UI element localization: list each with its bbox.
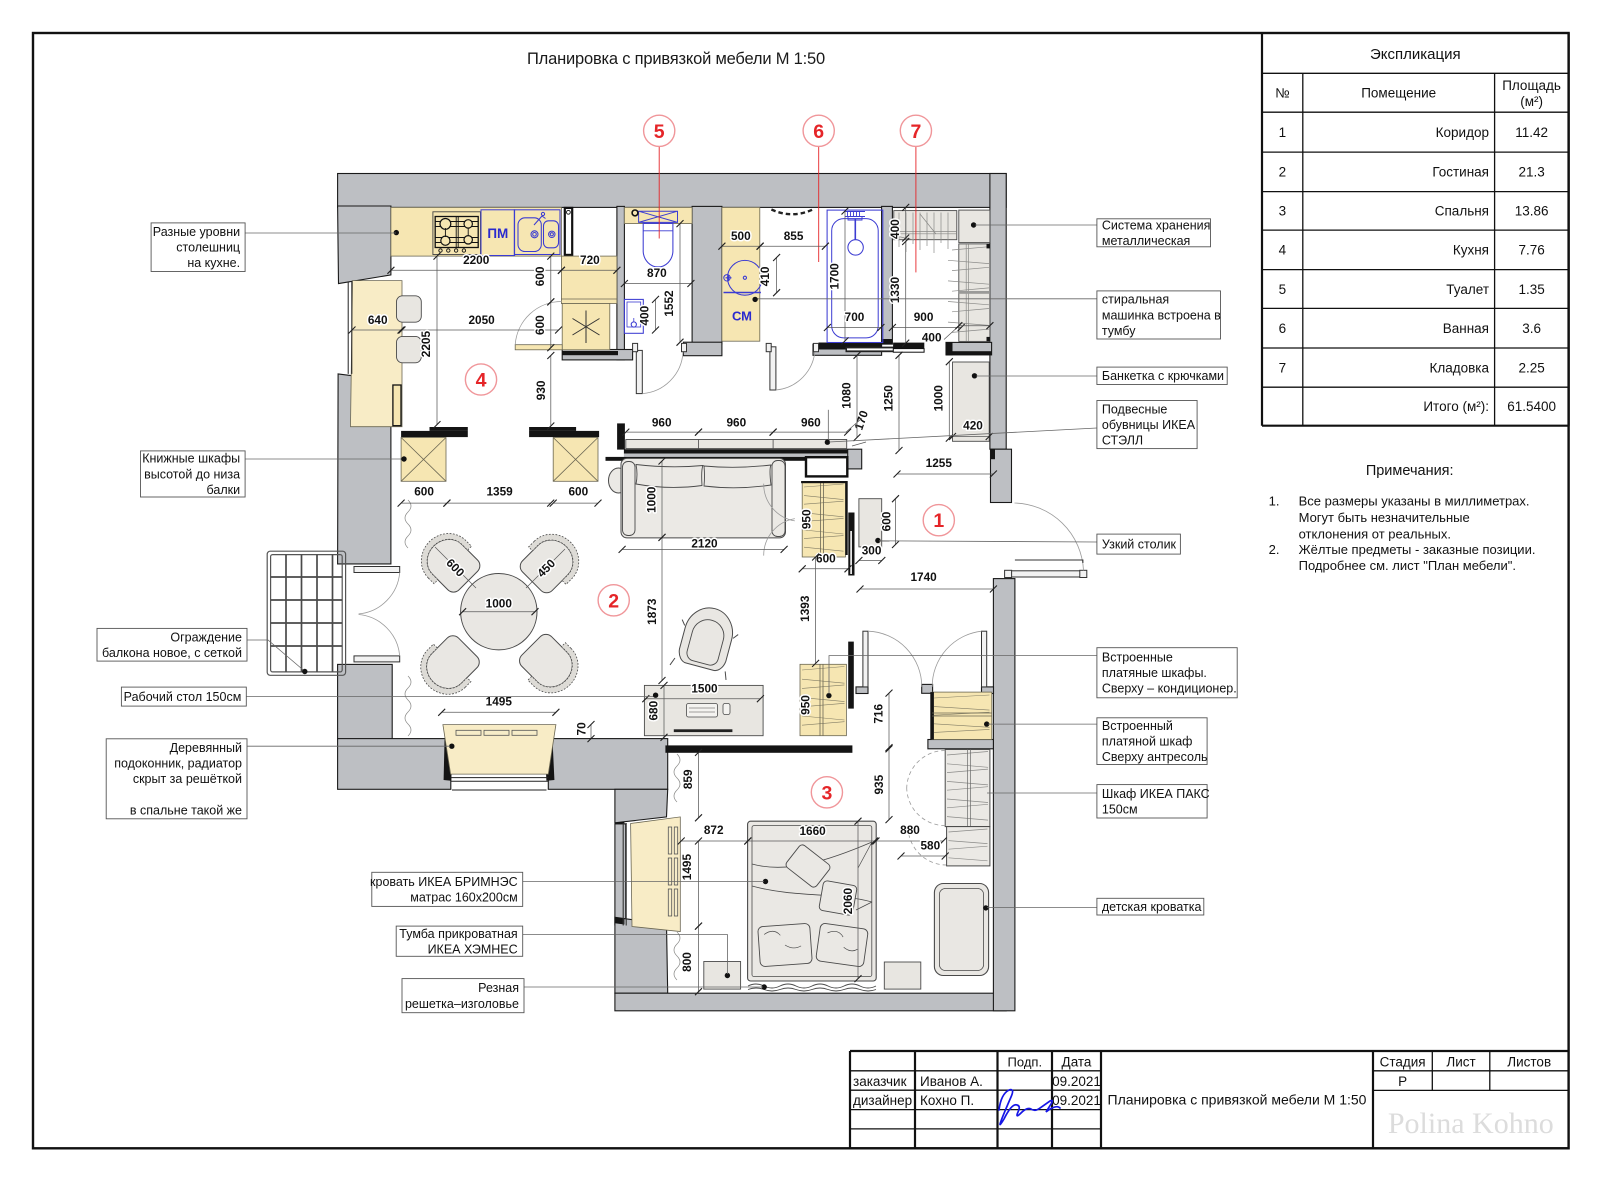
svg-text:870: 870 bbox=[647, 266, 667, 280]
svg-text:1: 1 bbox=[933, 510, 944, 532]
svg-text:Разные уровни: Разные уровни bbox=[153, 225, 240, 239]
svg-text:950: 950 bbox=[798, 695, 812, 715]
svg-text:1660: 1660 bbox=[799, 824, 826, 838]
svg-text:640: 640 bbox=[368, 313, 388, 327]
svg-text:2.25: 2.25 bbox=[1518, 360, 1544, 375]
svg-text:платяной шкаф: платяной шкаф bbox=[1102, 735, 1193, 749]
svg-text:70: 70 bbox=[574, 722, 588, 736]
svg-text:(м²): (м²) bbox=[1520, 94, 1543, 109]
svg-text:2: 2 bbox=[608, 590, 619, 612]
svg-text:стиральная: стиральная bbox=[1102, 293, 1169, 307]
svg-text:400: 400 bbox=[888, 219, 902, 239]
svg-text:балкона новое, с сеткой: балкона новое, с сеткой bbox=[102, 646, 242, 660]
svg-text:Встроенные: Встроенные bbox=[1102, 651, 1173, 665]
svg-text:4: 4 bbox=[1279, 243, 1287, 258]
svg-text:960: 960 bbox=[801, 415, 821, 429]
svg-text:Коридор: Коридор bbox=[1436, 125, 1489, 140]
svg-text:Итого (м²):: Итого (м²): bbox=[1423, 399, 1489, 414]
svg-text:880: 880 bbox=[900, 823, 920, 837]
svg-text:7.76: 7.76 bbox=[1518, 243, 1544, 258]
svg-text:09.2021: 09.2021 bbox=[1052, 1074, 1101, 1089]
svg-text:3.6: 3.6 bbox=[1522, 321, 1541, 336]
svg-text:Кухня: Кухня bbox=[1453, 243, 1489, 258]
svg-text:1700: 1700 bbox=[827, 263, 841, 290]
svg-text:800: 800 bbox=[680, 952, 694, 972]
svg-text:1255: 1255 bbox=[926, 456, 953, 470]
svg-text:Банкетка с крючками: Банкетка с крючками bbox=[1102, 369, 1224, 383]
svg-text:балки: балки bbox=[207, 483, 241, 497]
svg-text:400: 400 bbox=[638, 305, 652, 325]
svg-text:СТЭЛЛ: СТЭЛЛ bbox=[1102, 434, 1143, 448]
svg-text:3: 3 bbox=[1279, 204, 1287, 219]
svg-text:150см: 150см bbox=[1102, 803, 1138, 817]
svg-text:935: 935 bbox=[872, 774, 886, 794]
svg-text:на кухне.: на кухне. bbox=[187, 256, 240, 270]
svg-text:Площадь: Площадь bbox=[1502, 78, 1561, 93]
svg-text:металлическая: металлическая bbox=[1102, 234, 1190, 248]
svg-text:700: 700 bbox=[845, 310, 865, 324]
svg-text:855: 855 bbox=[784, 229, 804, 243]
svg-text:Тумба прикроватная: Тумба прикроватная bbox=[399, 927, 517, 941]
svg-text:Помещение: Помещение bbox=[1361, 86, 1436, 101]
svg-text:950: 950 bbox=[800, 509, 814, 529]
svg-text:Подп.: Подп. bbox=[1008, 1054, 1043, 1069]
svg-text:Лист: Лист bbox=[1446, 1054, 1475, 1069]
svg-text:500: 500 bbox=[731, 229, 751, 243]
svg-text:09.2021: 09.2021 bbox=[1052, 1093, 1101, 1108]
svg-text:СМ: СМ bbox=[732, 309, 752, 324]
svg-text:2120: 2120 bbox=[691, 536, 718, 550]
svg-text:1873: 1873 bbox=[645, 598, 659, 625]
svg-text:детская кроватка: детская кроватка bbox=[1102, 900, 1202, 914]
svg-text:410: 410 bbox=[758, 266, 772, 286]
svg-text:отклонения от реальных.: отклонения от реальных. bbox=[1299, 526, 1451, 541]
svg-text:7: 7 bbox=[1279, 360, 1287, 375]
svg-text:2.: 2. bbox=[1269, 542, 1280, 557]
svg-text:ПМ: ПМ bbox=[487, 226, 508, 241]
svg-text:Ограждение: Ограждение bbox=[170, 630, 242, 644]
svg-text:2060: 2060 bbox=[841, 888, 855, 915]
svg-text:Стадия: Стадия bbox=[1380, 1054, 1426, 1069]
svg-text:Все размеры указаны в миллимет: Все размеры указаны в миллиметрах. bbox=[1299, 494, 1530, 509]
svg-text:720: 720 bbox=[580, 253, 600, 267]
svg-text:580: 580 bbox=[920, 839, 940, 853]
svg-text:решетка–изголовье: решетка–изголовье bbox=[405, 997, 519, 1011]
svg-text:1000: 1000 bbox=[932, 385, 946, 412]
svg-text:4: 4 bbox=[476, 370, 487, 392]
svg-text:13.86: 13.86 bbox=[1515, 204, 1549, 219]
svg-text:заказчик: заказчик bbox=[853, 1074, 907, 1089]
svg-text:Встроенный: Встроенный bbox=[1102, 719, 1173, 733]
svg-text:Туалет: Туалет bbox=[1446, 282, 1489, 297]
svg-text:1552: 1552 bbox=[662, 290, 676, 317]
svg-text:600: 600 bbox=[533, 266, 547, 286]
svg-text:930: 930 bbox=[534, 380, 548, 400]
svg-text:подоконник, радиатор: подоконник, радиатор bbox=[114, 757, 242, 771]
svg-text:6: 6 bbox=[1279, 321, 1287, 336]
svg-text:1359: 1359 bbox=[486, 485, 513, 499]
svg-text:872: 872 bbox=[704, 823, 724, 837]
svg-text:Спальня: Спальня bbox=[1435, 204, 1489, 219]
svg-text:Рабочий стол 150см: Рабочий стол 150см bbox=[124, 690, 242, 704]
svg-text:высотой до низа: высотой до низа bbox=[144, 467, 240, 481]
svg-text:1.: 1. bbox=[1269, 494, 1280, 509]
svg-text:Планировка с привязкой мебели: Планировка с привязкой мебели М 1:50 bbox=[1108, 1092, 1367, 1108]
svg-text:Кладовка: Кладовка bbox=[1429, 360, 1489, 375]
svg-text:Сверху антресоль: Сверху антресоль bbox=[1102, 750, 1208, 764]
svg-text:Гостиная: Гостиная bbox=[1432, 165, 1489, 180]
svg-text:дизайнер: дизайнер bbox=[853, 1093, 912, 1108]
svg-text:1000: 1000 bbox=[486, 597, 513, 611]
svg-text:Polina Kohno: Polina Kohno bbox=[1388, 1107, 1554, 1140]
svg-text:420: 420 bbox=[963, 419, 983, 433]
svg-text:ИКЕА ХЭМНЕС: ИКЕА ХЭМНЕС bbox=[428, 942, 518, 956]
svg-text:2: 2 bbox=[1279, 165, 1287, 180]
svg-text:1495: 1495 bbox=[680, 854, 694, 881]
svg-text:обувницы ИКЕА: обувницы ИКЕА bbox=[1102, 418, 1196, 432]
svg-text:в спальне такой же: в спальне такой же bbox=[130, 803, 242, 817]
svg-text:Система хранения: Система хранения bbox=[1102, 218, 1210, 232]
svg-text:1: 1 bbox=[1279, 125, 1287, 140]
svg-text:Жёлтые предметы - заказные поз: Жёлтые предметы - заказные позиции. bbox=[1299, 542, 1536, 557]
svg-text:Шкаф ИКЕА ПАКС: Шкаф ИКЕА ПАКС bbox=[1102, 787, 1210, 801]
svg-text:кровать ИКЕА БРИМНЭС: кровать ИКЕА БРИМНЭС bbox=[370, 875, 518, 889]
svg-text:Экспликация: Экспликация bbox=[1370, 46, 1461, 63]
svg-text:Резная: Резная bbox=[478, 981, 519, 995]
svg-text:1740: 1740 bbox=[910, 570, 937, 584]
svg-text:960: 960 bbox=[726, 415, 746, 429]
svg-text:1500: 1500 bbox=[691, 681, 718, 695]
svg-text:платяные шкафы.: платяные шкафы. bbox=[1102, 666, 1207, 680]
svg-text:6: 6 bbox=[813, 121, 824, 143]
svg-text:900: 900 bbox=[914, 310, 934, 324]
svg-text:Книжные шкафы: Книжные шкафы bbox=[142, 452, 240, 466]
svg-text:11.42: 11.42 bbox=[1515, 125, 1548, 140]
svg-text:матрас 160х200см: матрас 160х200см bbox=[410, 891, 517, 905]
svg-text:600: 600 bbox=[414, 485, 434, 499]
svg-text:2205: 2205 bbox=[419, 331, 433, 358]
svg-text:№: № bbox=[1275, 86, 1289, 101]
svg-text:680: 680 bbox=[646, 700, 660, 720]
svg-text:7: 7 bbox=[910, 121, 921, 143]
svg-text:Узкий столик: Узкий столик bbox=[1102, 538, 1177, 552]
svg-text:скрыт за решёткой: скрыт за решёткой bbox=[133, 772, 242, 786]
svg-text:1393: 1393 bbox=[798, 595, 812, 622]
svg-text:Дата: Дата bbox=[1062, 1054, 1092, 1069]
svg-text:1080: 1080 bbox=[840, 382, 854, 409]
svg-text:21.3: 21.3 bbox=[1518, 165, 1544, 180]
svg-text:716: 716 bbox=[872, 704, 886, 724]
svg-text:859: 859 bbox=[681, 769, 695, 789]
svg-text:Планировка с привязкой мебели: Планировка с привязкой мебели М 1:50 bbox=[527, 50, 825, 68]
svg-text:Деревянный: Деревянный bbox=[170, 741, 242, 755]
svg-text:Могут быть незначительные: Могут быть незначительные bbox=[1299, 510, 1470, 525]
svg-text:машинка встроена в: машинка встроена в bbox=[1102, 308, 1221, 322]
svg-text:960: 960 bbox=[652, 415, 672, 429]
svg-text:1.35: 1.35 bbox=[1518, 282, 1544, 297]
svg-text:тумбу: тумбу bbox=[1102, 324, 1136, 338]
svg-text:Листов: Листов bbox=[1507, 1054, 1551, 1069]
svg-text:400: 400 bbox=[922, 330, 942, 344]
svg-text:Сверху – кондиционер.: Сверху – кондиционер. bbox=[1102, 682, 1237, 696]
svg-text:600: 600 bbox=[533, 315, 547, 335]
svg-text:Примечания:: Примечания: bbox=[1366, 463, 1454, 479]
svg-text:1000: 1000 bbox=[645, 486, 659, 513]
svg-text:2200: 2200 bbox=[463, 253, 490, 267]
svg-text:Иванов А.: Иванов А. bbox=[920, 1074, 983, 1089]
svg-text:столешниц: столешниц bbox=[176, 241, 240, 255]
svg-text:Подробнее см. лист "План мебел: Подробнее см. лист "План мебели". bbox=[1299, 558, 1516, 573]
svg-text:600: 600 bbox=[568, 485, 588, 499]
svg-text:600: 600 bbox=[880, 511, 894, 531]
svg-text:Р: Р bbox=[1398, 1074, 1407, 1089]
svg-text:5: 5 bbox=[1279, 282, 1287, 297]
svg-text:3: 3 bbox=[821, 782, 832, 804]
svg-text:300: 300 bbox=[862, 544, 882, 558]
svg-text:5: 5 bbox=[654, 121, 665, 143]
svg-text:1250: 1250 bbox=[881, 385, 895, 412]
svg-text:2050: 2050 bbox=[468, 313, 495, 327]
svg-text:Кохно П.: Кохно П. bbox=[920, 1093, 974, 1108]
svg-text:61.5400: 61.5400 bbox=[1507, 399, 1556, 414]
svg-text:Ванная: Ванная bbox=[1443, 321, 1489, 336]
svg-text:Подвесные: Подвесные bbox=[1102, 402, 1168, 416]
